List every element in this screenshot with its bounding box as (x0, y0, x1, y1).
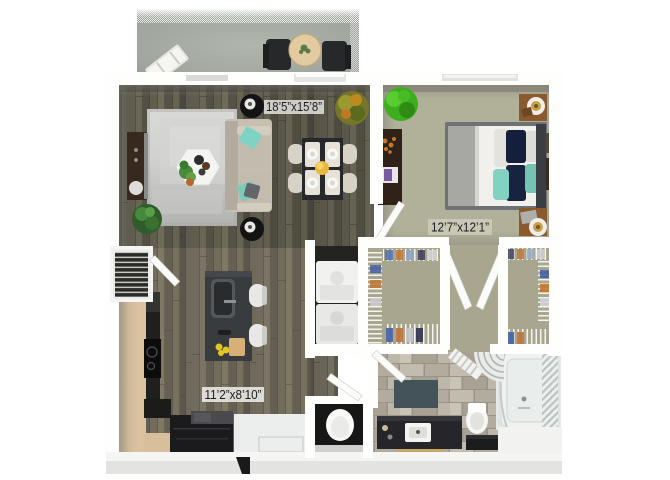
svg-text:11’2”x8’10”: 11’2”x8’10” (205, 387, 262, 402)
svg-text:18’5”x15’8”: 18’5”x15’8” (266, 99, 322, 114)
svg-text:12’7”x12’1”: 12’7”x12’1” (431, 220, 489, 235)
